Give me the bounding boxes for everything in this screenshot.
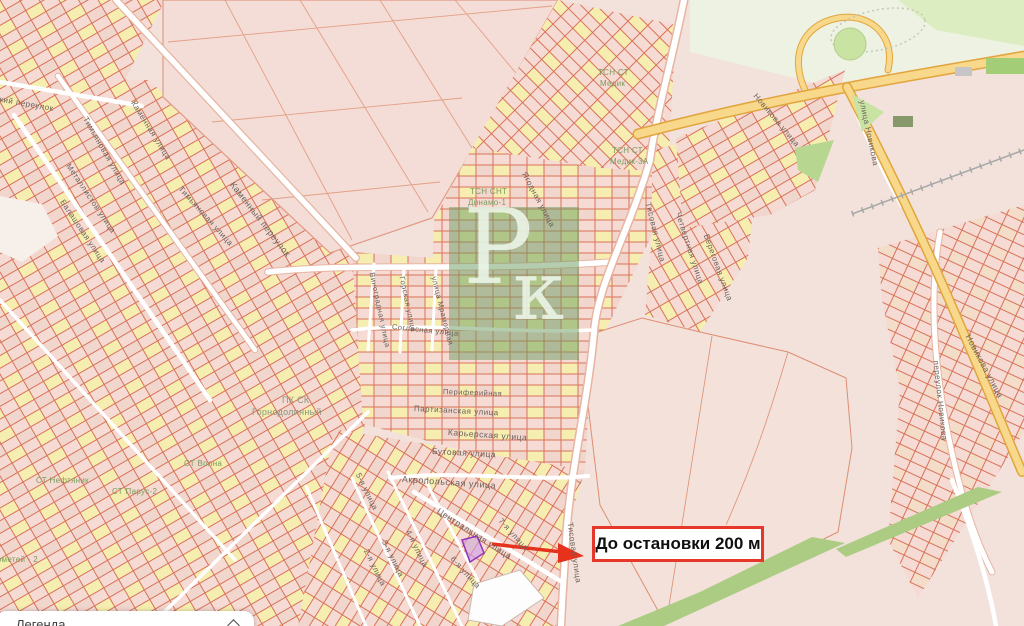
pkk-watermark-box (449, 207, 579, 360)
legend-panel[interactable]: Легенда (0, 611, 254, 626)
legend-title: Легенда (16, 617, 65, 626)
map-canvas[interactable] (0, 0, 1024, 626)
cadastral-map[interactable]: Р к Технический переулокКаменная улицаТи… (0, 0, 1024, 626)
chevron-up-icon[interactable] (227, 619, 240, 626)
distance-annotation: До остановки 200 м (592, 526, 764, 562)
